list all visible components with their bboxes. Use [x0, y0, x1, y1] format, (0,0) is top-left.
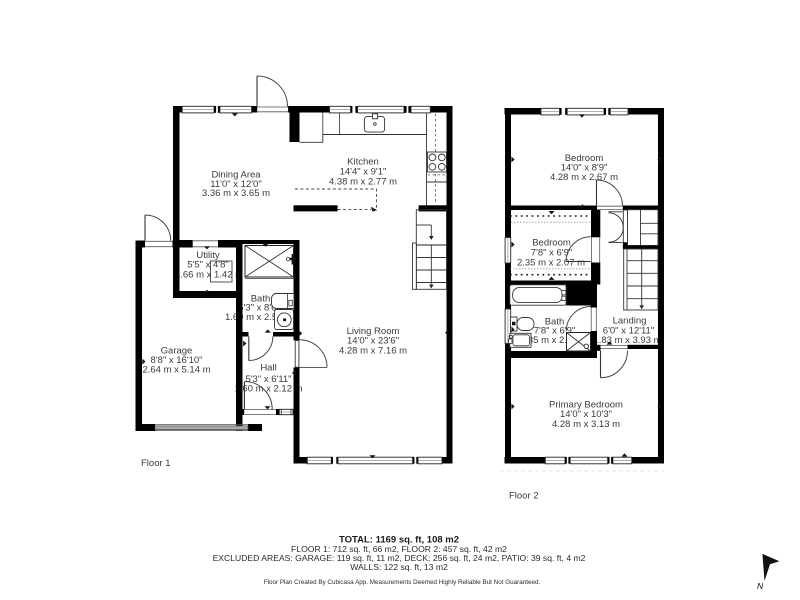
svg-text:Floor Plan Created By Cubicasa: Floor Plan Created By Cubicasa App. Meas… — [264, 579, 541, 586]
svg-text:1.83 m x 3.93 m: 1.83 m x 3.93 m — [593, 335, 661, 346]
svg-text:WALLS: 122 sq. ft, 13 m2: WALLS: 122 sq. ft, 13 m2 — [350, 562, 448, 572]
svg-text:3.36 m x 3.65 m: 3.36 m x 3.65 m — [202, 188, 270, 199]
svg-text:4.28 m x 3.13 m: 4.28 m x 3.13 m — [552, 419, 620, 430]
svg-text:Floor 1: Floor 1 — [141, 458, 171, 469]
svg-text:4.28 m x 7.16 m: 4.28 m x 7.16 m — [339, 346, 407, 357]
svg-text:2.64 m x 5.14 m: 2.64 m x 5.14 m — [142, 364, 210, 375]
svg-text:Floor 2: Floor 2 — [509, 491, 539, 502]
svg-text:1.66 m x 1.42 m: 1.66 m x 1.42 m — [175, 269, 243, 280]
svg-text:Hall: Hall — [260, 363, 276, 374]
svg-text:2.35 m x 2.07 m: 2.35 m x 2.07 m — [517, 258, 585, 269]
svg-text:4.38 m x 2.77 m: 4.38 m x 2.77 m — [329, 177, 397, 188]
svg-text:4.28 m x 2.67 m: 4.28 m x 2.67 m — [550, 172, 618, 183]
svg-text:N: N — [757, 581, 764, 591]
